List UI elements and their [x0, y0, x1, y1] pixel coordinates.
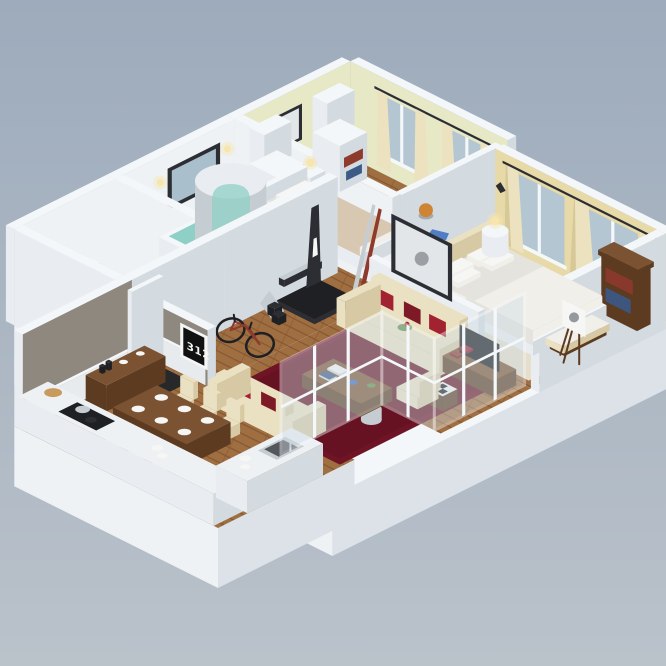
bathroom-sconce-right [157, 179, 164, 186]
wall-wc-northwest-sw [6, 225, 14, 325]
sideboard-dish-2 [119, 360, 128, 364]
master-lamp-far [491, 216, 500, 225]
sideboard-dish-1 [136, 351, 145, 355]
dining-plate-5 [155, 417, 168, 424]
kids-window-1-mullion [400, 104, 403, 164]
dining-plate-2 [178, 406, 191, 413]
kitchen-plate-2 [157, 453, 167, 458]
easel-portrait-sketch [569, 312, 579, 322]
dining-plate-4 [132, 406, 145, 413]
kitchen-plate-1 [151, 445, 163, 451]
apartment-3d-floorplan: 312 [0, 0, 666, 666]
bicycle-seat-post [234, 315, 235, 322]
halfwall-picture-figure [415, 252, 429, 266]
dining-chair-2-back-se [217, 392, 221, 411]
sideboard-bottle-1-sw [106, 361, 109, 371]
kitchen-plate-3 [239, 455, 251, 461]
dining-plate-1 [155, 394, 168, 401]
dining-plate-3 [201, 417, 214, 424]
kitchen-plate-4 [240, 464, 250, 469]
dining-chair-1-back-se [194, 381, 198, 400]
sideboard-bottle-1-se [109, 361, 112, 371]
master-bookcase-se [637, 266, 651, 331]
master-window-1-mullion [538, 184, 541, 254]
sofa-1-arm-left-sw [337, 298, 346, 329]
dining-plate-6 [178, 429, 191, 436]
cooking-pot-1 [75, 406, 90, 413]
bread-basket [44, 388, 62, 397]
bathroom-sconce-left [224, 145, 231, 152]
cooking-pot-2 [85, 417, 97, 423]
floor-plan-render: 312 [0, 0, 666, 666]
basketball [419, 203, 433, 217]
kids-lamp [306, 159, 314, 167]
dining-chair-3-back-se [240, 404, 244, 423]
